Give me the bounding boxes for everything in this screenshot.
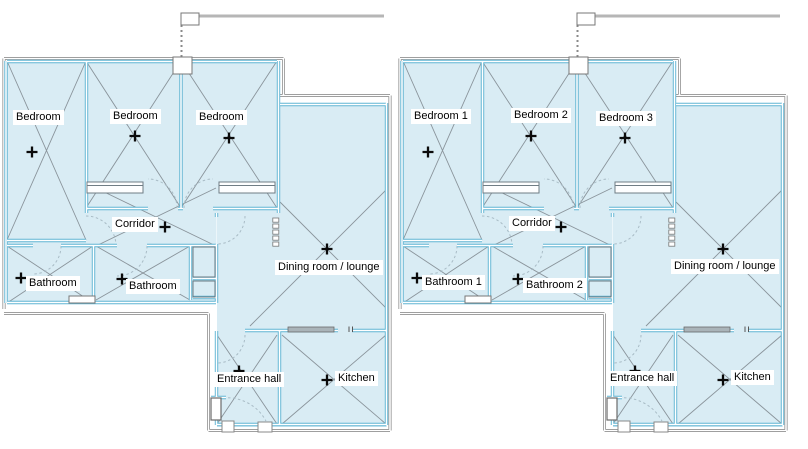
floor-plans-canvas: Bedroom Bedroom Bedroom Corridor Bathroo… [0,0,808,449]
room-label-kitchen: Kitchen [335,371,378,386]
room-label-bedroom-2: Bedroom 2 [511,108,571,123]
room-label-bedroom-1: Bedroom [13,110,64,125]
floor-plan-left-geometry [4,13,390,432]
room-label-corridor: Corridor [509,216,555,231]
room-label-bedroom-3: Bedroom 3 [596,111,656,126]
room-label-bedroom-3: Bedroom [196,110,247,125]
room-label-bathroom-2: Bathroom [126,279,180,294]
room-label-kitchen: Kitchen [731,370,774,385]
floor-plan-right-geometry [400,13,786,432]
room-label-bathroom-1: Bathroom [26,276,80,291]
room-label-entrance: Entrance hall [607,371,677,386]
room-label-entrance: Entrance hall [214,372,284,387]
room-label-corridor: Corridor [112,217,158,232]
room-label-bathroom-1: Bathroom 1 [422,275,485,290]
room-label-bedroom-2: Bedroom [110,109,161,124]
room-label-bathroom-2: Bathroom 2 [523,278,586,293]
room-label-bedroom-1: Bedroom 1 [411,109,471,124]
room-label-dining: Dining room / lounge [671,259,779,274]
room-label-dining: Dining room / lounge [275,260,383,275]
